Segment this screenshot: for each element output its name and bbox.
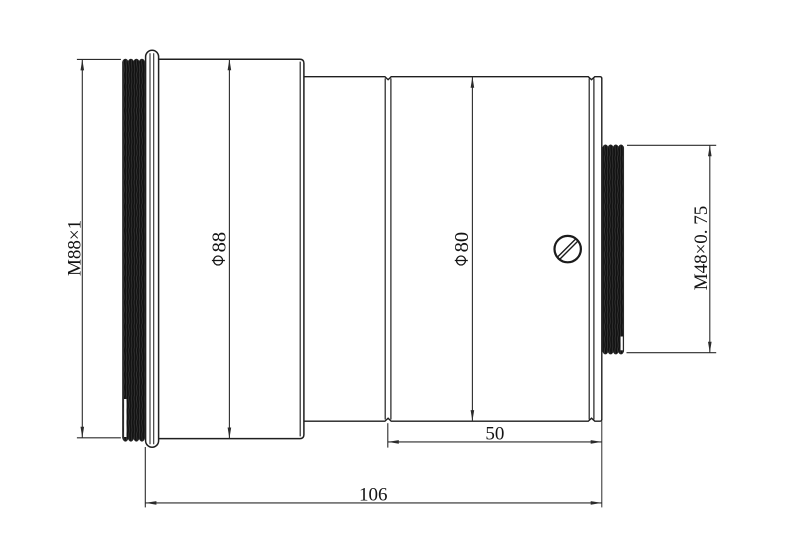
svg-text:M48×0. 75: M48×0. 75 [691,206,712,291]
svg-text:80: 80 [451,232,473,253]
svg-text:88: 88 [208,232,230,253]
svg-text:106: 106 [359,485,388,506]
svg-text:M88×1: M88×1 [65,220,86,276]
svg-text:50: 50 [485,423,504,444]
